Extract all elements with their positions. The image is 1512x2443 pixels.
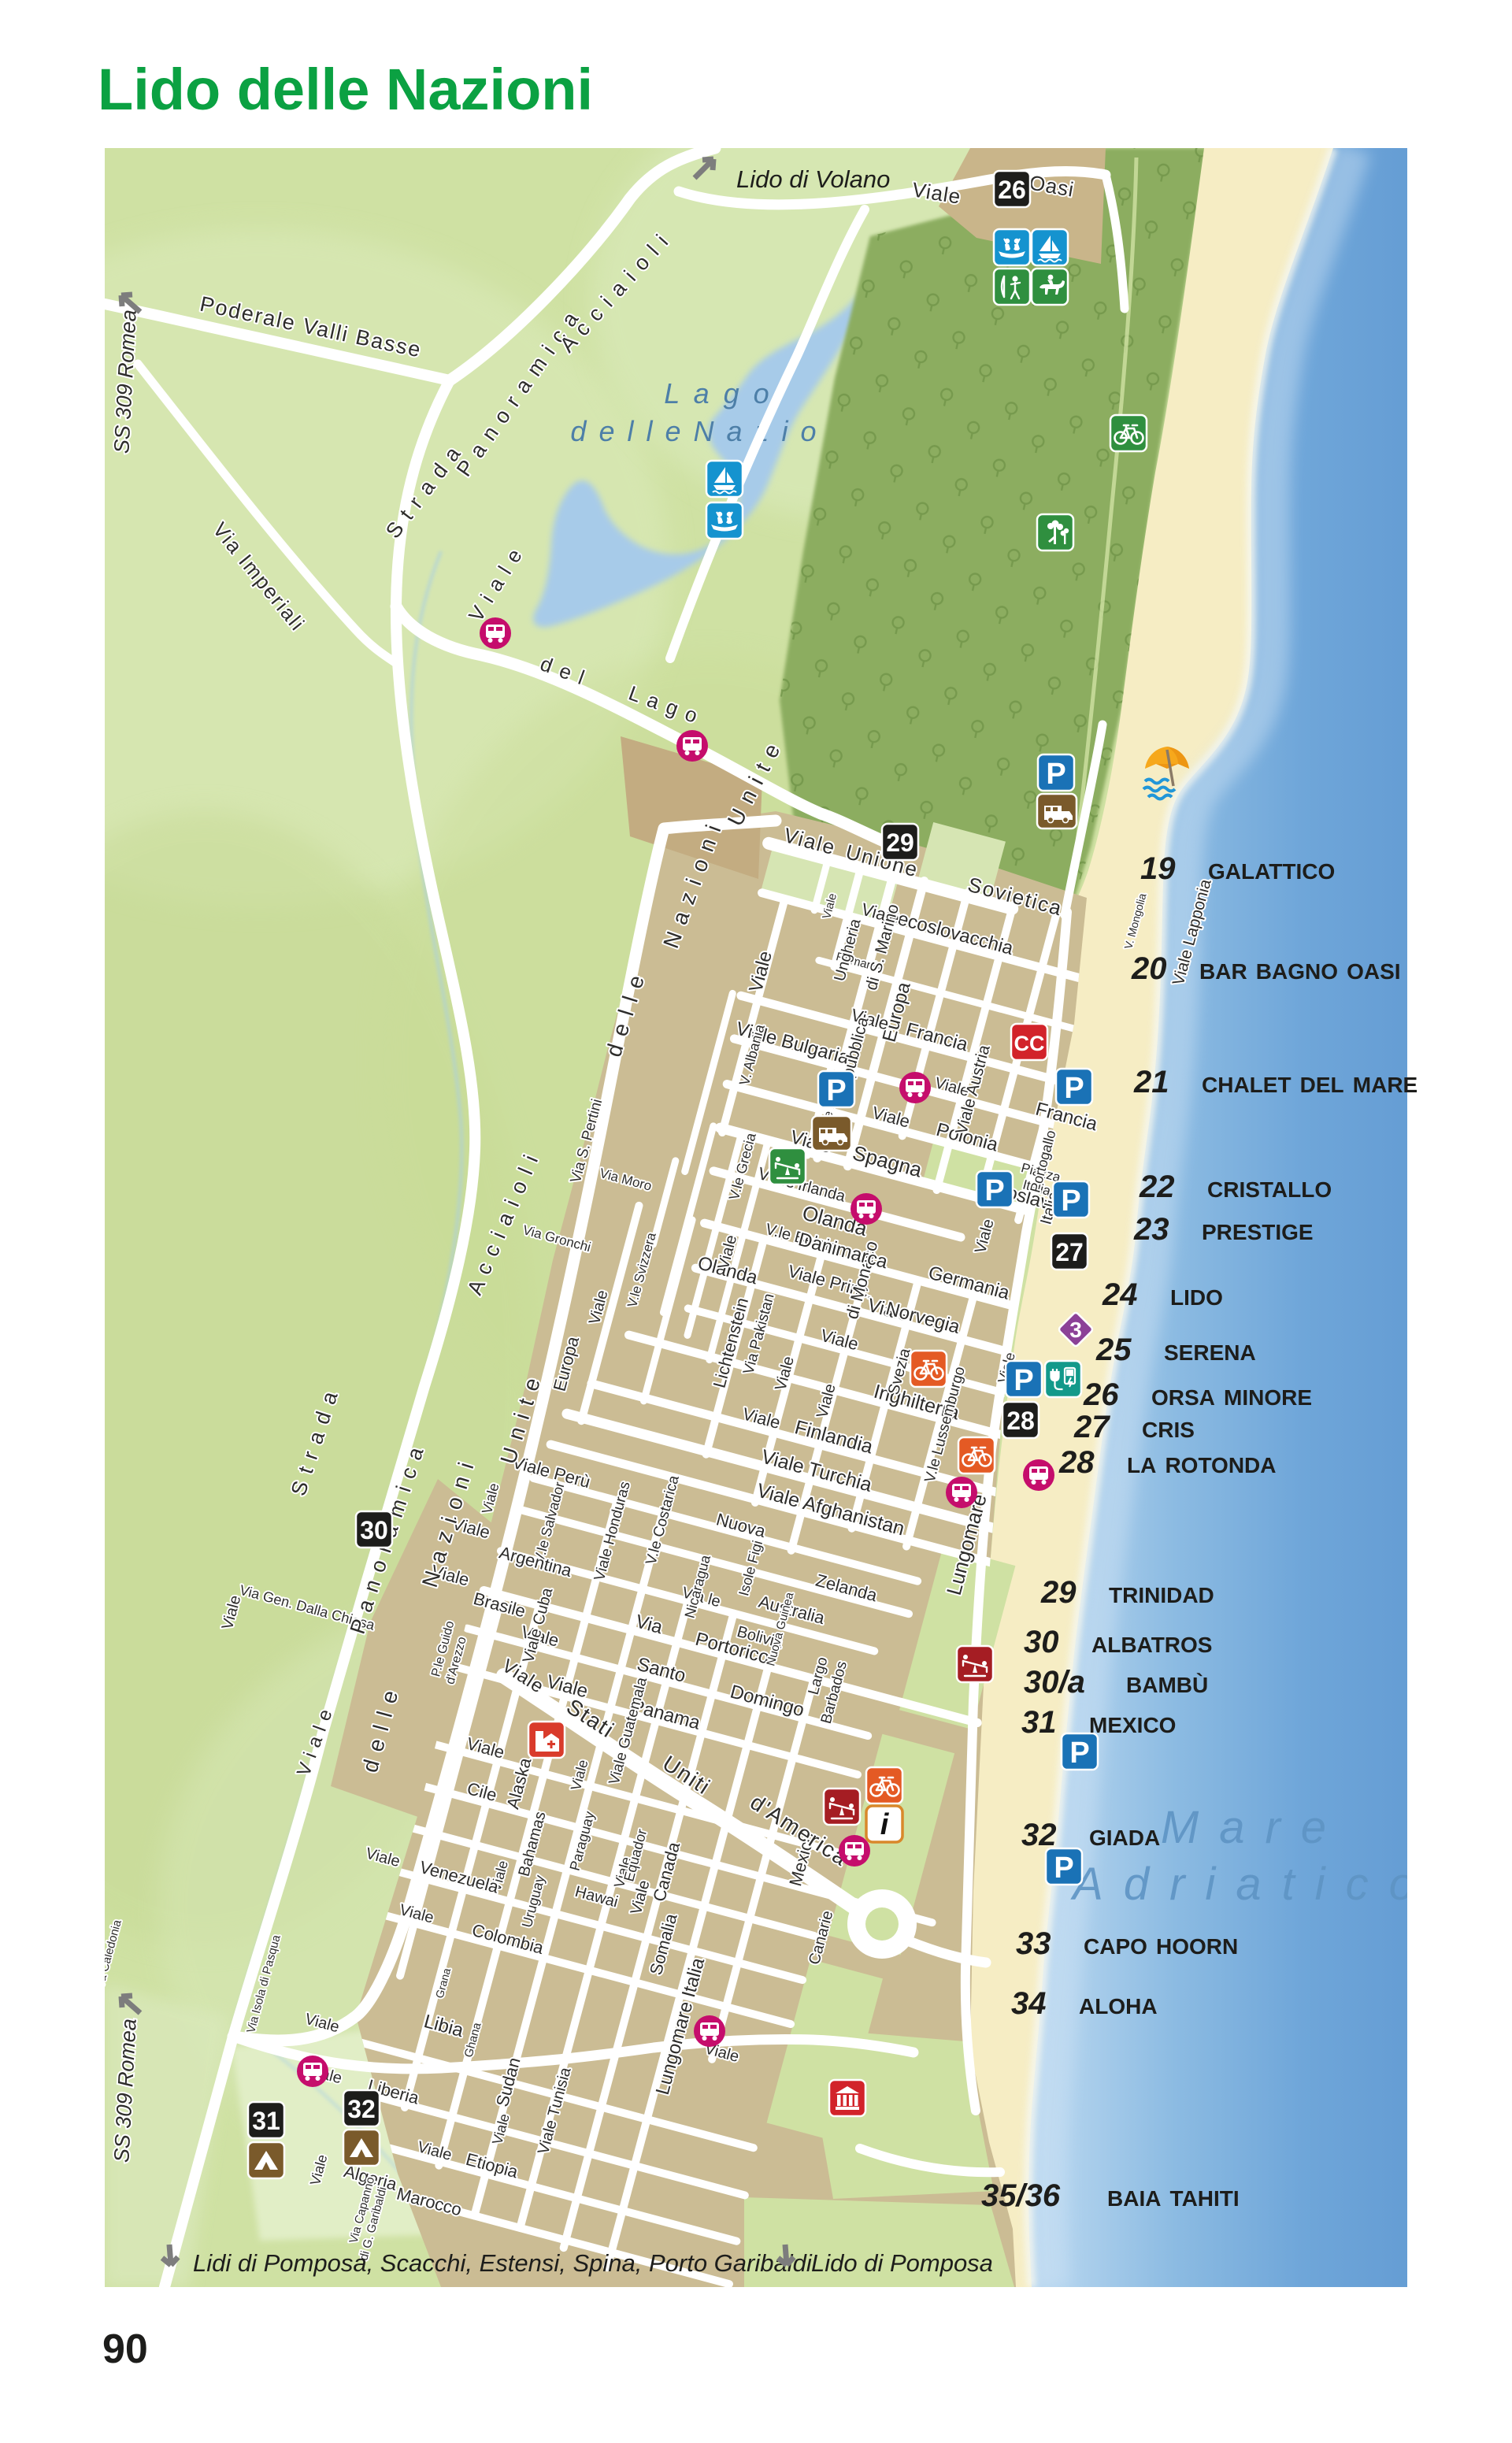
svg-text:cristallo: cristallo (1207, 1170, 1332, 1204)
svg-text:bambù: bambù (1126, 1665, 1208, 1700)
svg-text:orsa minore: orsa minore (1151, 1377, 1312, 1412)
svg-text:26: 26 (1083, 1377, 1119, 1412)
svg-text:giada: giada (1089, 1818, 1160, 1852)
svg-text:29: 29 (886, 829, 914, 857)
svg-text:25: 25 (1095, 1333, 1132, 1367)
svg-text:aloha: aloha (1079, 1986, 1158, 2021)
svg-text:baia tahiti: baia tahiti (1107, 2178, 1240, 2213)
svg-text:19: 19 (1140, 851, 1176, 886)
svg-text:trinidad: trinidad (1109, 1575, 1214, 1610)
svg-text:32: 32 (347, 2095, 376, 2123)
svg-text:20: 20 (1131, 951, 1167, 986)
svg-text:Lido di Pomposa: Lido di Pomposa (811, 2249, 993, 2277)
svg-text:Lido di Volano: Lido di Volano (736, 165, 890, 193)
svg-text:24: 24 (1102, 1277, 1138, 1312)
svg-text:22: 22 (1139, 1170, 1175, 1204)
svg-text:21: 21 (1133, 1065, 1169, 1099)
svg-text:27: 27 (1073, 1410, 1110, 1444)
svg-text:cris: cris (1142, 1410, 1195, 1444)
svg-text:30: 30 (1024, 1625, 1059, 1659)
svg-text:28: 28 (1058, 1445, 1095, 1480)
svg-text:29: 29 (1040, 1575, 1077, 1610)
svg-text:mexico: mexico (1089, 1705, 1176, 1740)
svg-text:lido: lido (1170, 1277, 1223, 1312)
svg-text:33: 33 (1016, 1926, 1051, 1961)
svg-text:34: 34 (1011, 1986, 1047, 2021)
svg-text:Lido delle Nazioni: Lido delle Nazioni (98, 57, 593, 122)
svg-text:26: 26 (998, 176, 1026, 204)
svg-text:albatros: albatros (1091, 1625, 1212, 1659)
svg-text:30: 30 (360, 1516, 388, 1544)
svg-text:prestige: prestige (1202, 1212, 1314, 1247)
svg-text:bar bagno oasi: bar bagno oasi (1199, 951, 1401, 986)
svg-text:23: 23 (1133, 1212, 1169, 1247)
svg-text:27: 27 (1055, 1238, 1084, 1266)
svg-text:galattico: galattico (1208, 851, 1335, 886)
svg-text:capo hoorn: capo hoorn (1084, 1926, 1238, 1961)
svg-text:28: 28 (1006, 1407, 1035, 1435)
svg-text:31: 31 (252, 2107, 280, 2135)
svg-text:30/a: 30/a (1024, 1665, 1085, 1700)
svg-text:Mare: Mare (1161, 1802, 1347, 1853)
svg-text:Adriatico: Adriatico (1070, 1859, 1435, 1910)
svg-text:32: 32 (1021, 1818, 1057, 1852)
svg-text:35/36: 35/36 (981, 2178, 1061, 2213)
svg-text:L a g o: L a g o (664, 377, 772, 410)
svg-text:chalet del mare: chalet del mare (1202, 1065, 1417, 1099)
svg-text:la rotonda: la rotonda (1127, 1445, 1276, 1480)
svg-text:Lidi di Pomposa, Scacchi, Este: Lidi di Pomposa, Scacchi, Estensi, Spina… (193, 2249, 813, 2277)
svg-text:90: 90 (102, 2326, 148, 2372)
svg-text:d e l l e N a z i o n i: d e l l e N a z i o n i (570, 415, 865, 447)
svg-text:31: 31 (1021, 1705, 1057, 1740)
svg-text:serena: serena (1164, 1333, 1256, 1367)
